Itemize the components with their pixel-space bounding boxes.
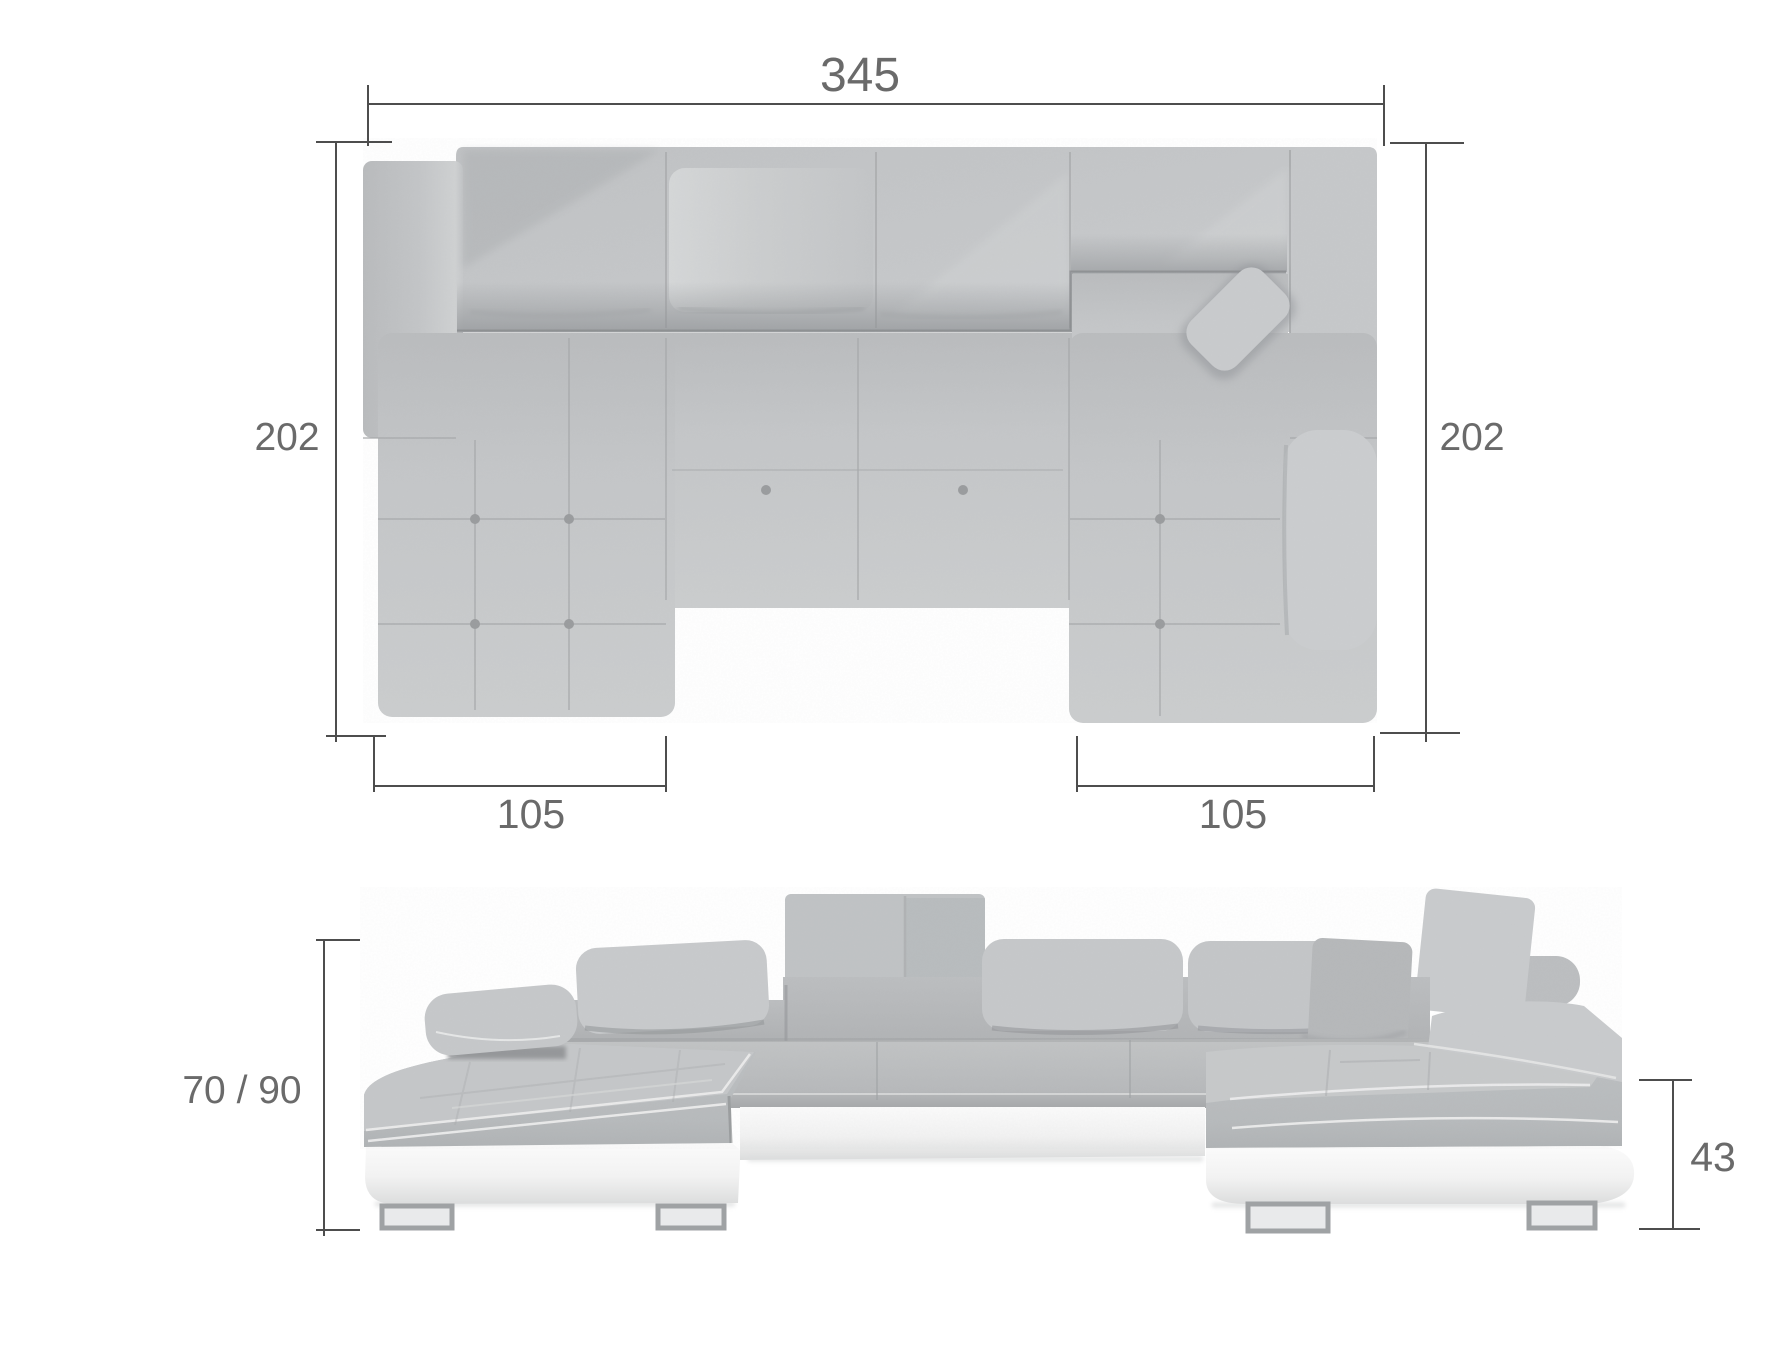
svg-text:202: 202 <box>254 416 319 459</box>
svg-text:345: 345 <box>820 49 900 102</box>
svg-text:202: 202 <box>1439 416 1504 459</box>
svg-text:43: 43 <box>1690 1134 1736 1180</box>
svg-text:105: 105 <box>497 791 565 837</box>
svg-text:70 / 90: 70 / 90 <box>182 1069 301 1112</box>
svg-text:105: 105 <box>1199 791 1267 837</box>
